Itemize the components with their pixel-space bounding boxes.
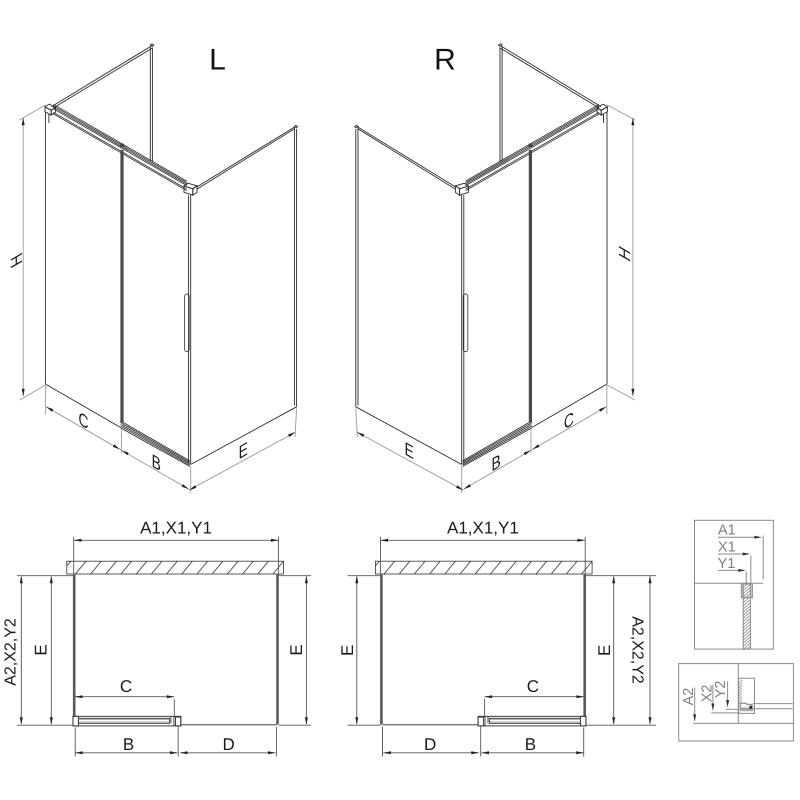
svg-text:Y1: Y1 (718, 556, 736, 572)
svg-text:B: B (525, 735, 536, 754)
svg-text:A1,X1,Y1: A1,X1,Y1 (447, 519, 519, 538)
svg-text:E: E (287, 644, 306, 655)
svg-text:Y2: Y2 (713, 681, 729, 699)
svg-text:A2,X2,Y2: A2,X2,Y2 (3, 618, 20, 686)
svg-text:L: L (209, 44, 226, 77)
svg-text:R: R (434, 44, 456, 77)
svg-text:E: E (32, 644, 51, 655)
svg-text:X1: X1 (718, 539, 736, 555)
svg-text:D: D (424, 735, 436, 754)
svg-text:C: C (120, 677, 132, 696)
svg-text:E: E (338, 645, 357, 656)
svg-text:C: C (527, 677, 539, 696)
svg-text:A2,X2,Y2: A2,X2,Y2 (629, 616, 646, 684)
svg-text:B: B (123, 735, 134, 754)
svg-text:A1,X1,Y1: A1,X1,Y1 (140, 519, 212, 538)
svg-text:A1: A1 (718, 523, 736, 539)
svg-text:E: E (595, 645, 614, 656)
svg-text:D: D (223, 735, 235, 754)
